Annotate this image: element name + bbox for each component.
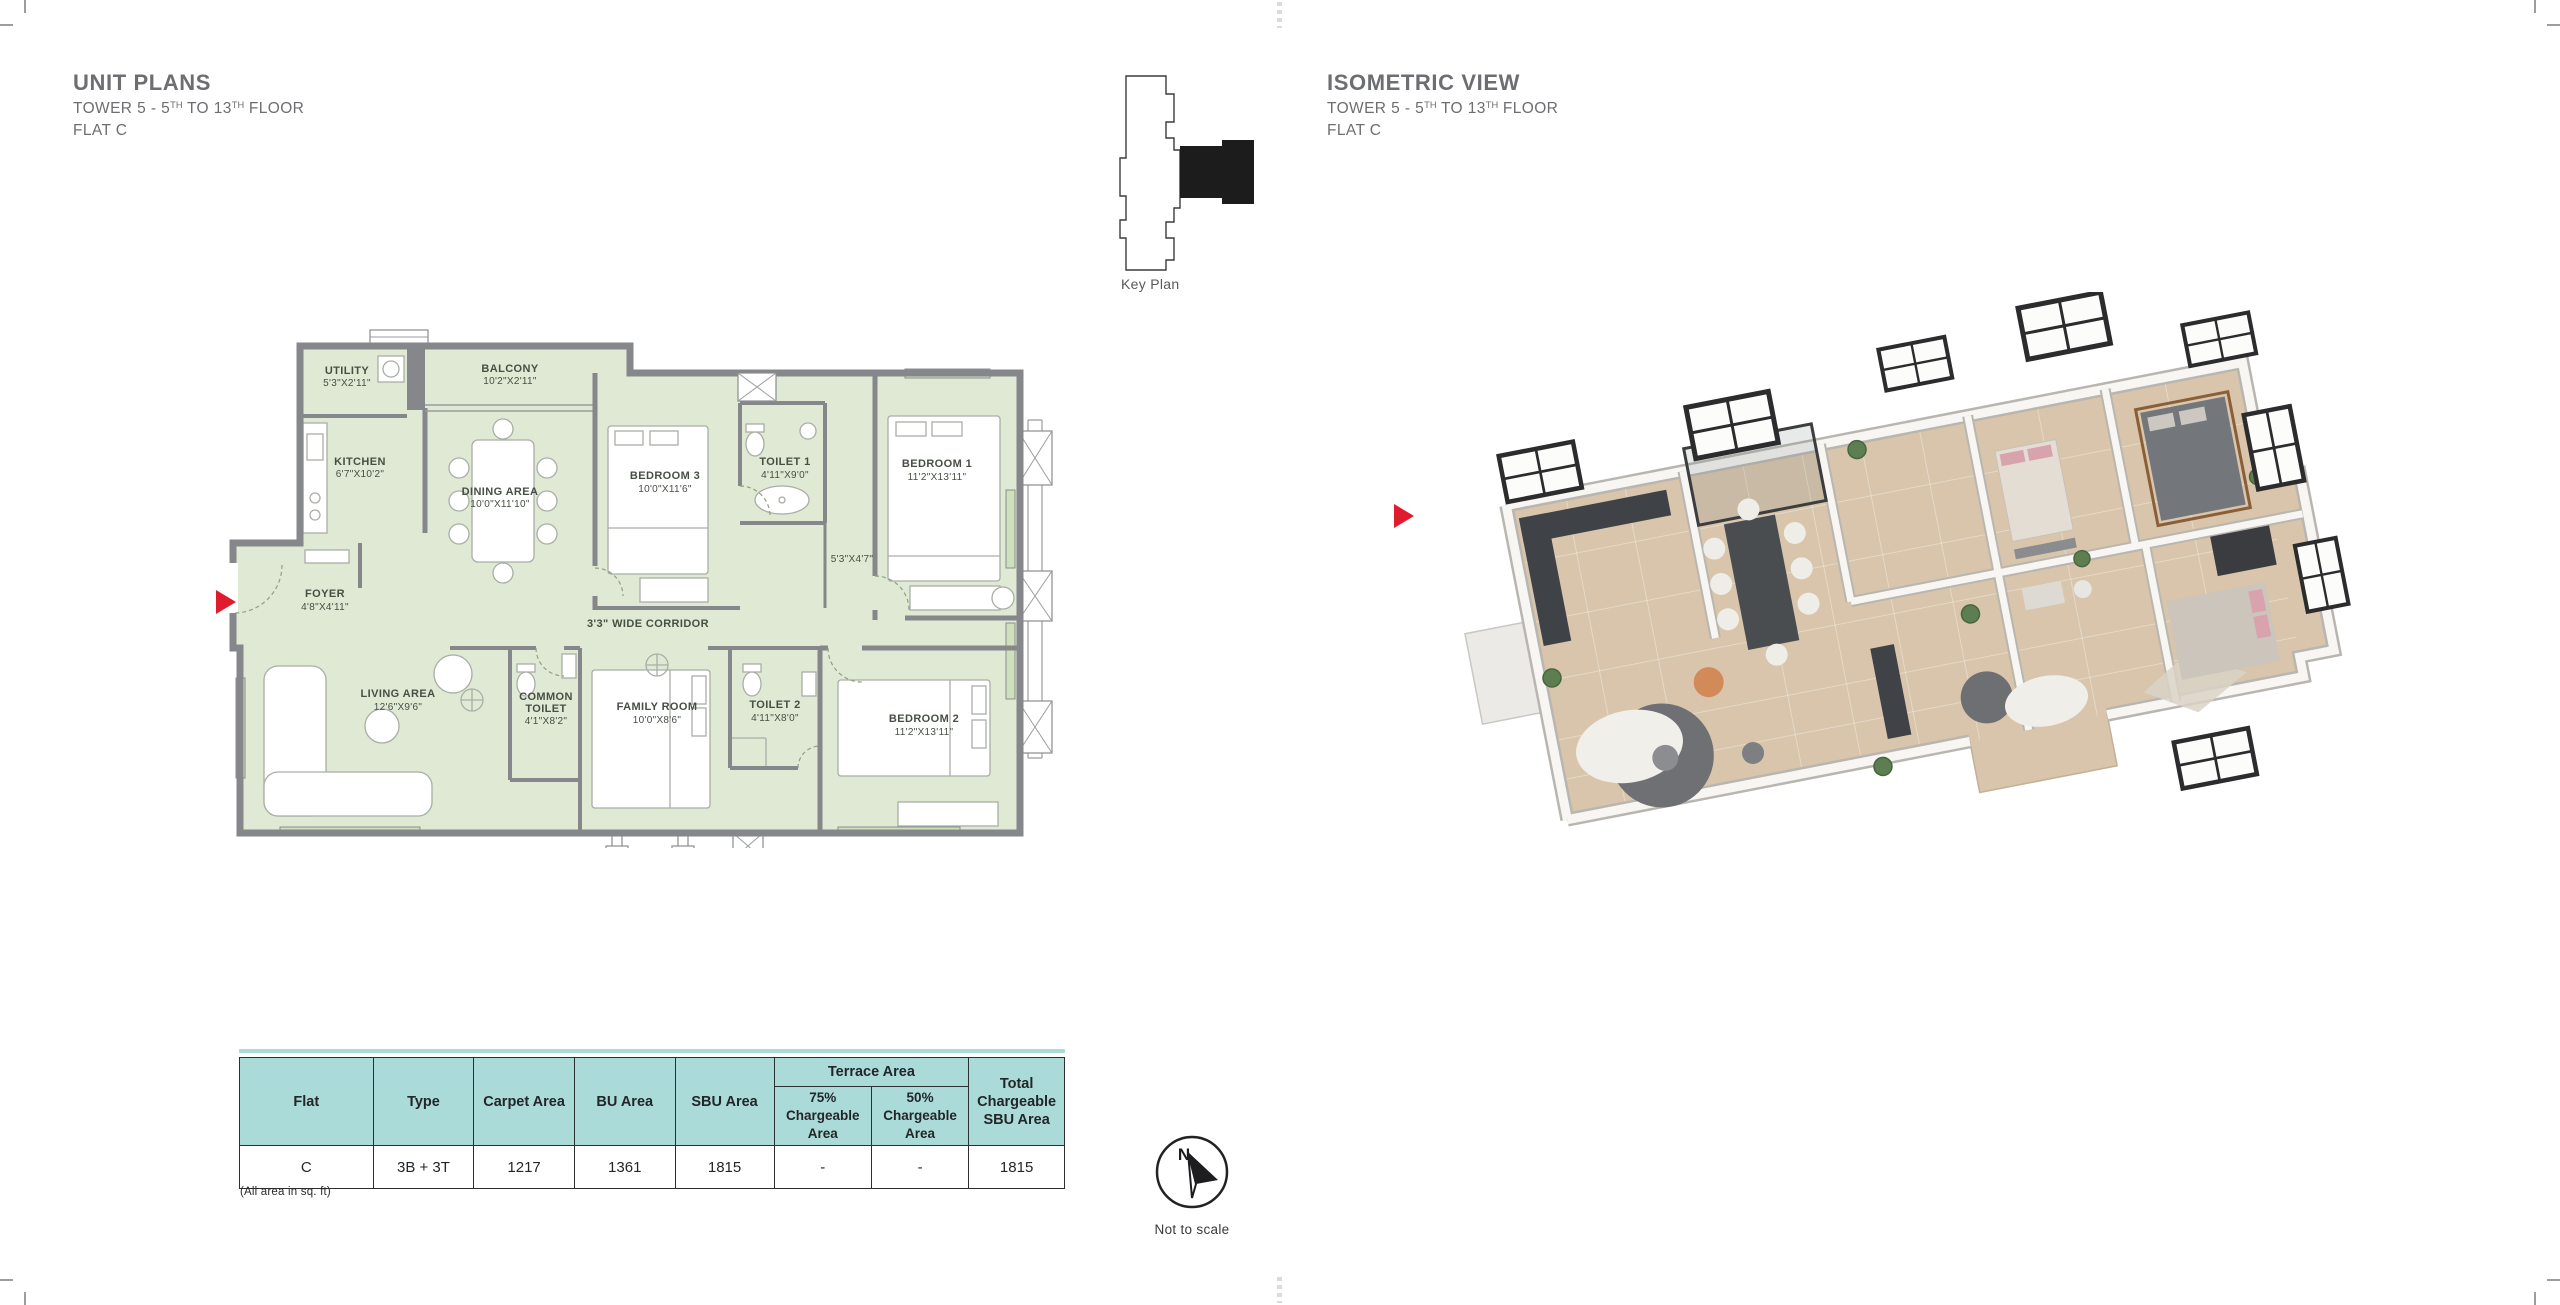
fan-icon	[461, 689, 483, 711]
room-label-foyer: FOYER	[305, 588, 345, 600]
room-label-bedroom2: BEDROOM 2	[889, 713, 959, 725]
area-table: Flat Type Carpet Area BU Area SBU Area T…	[239, 1057, 1065, 1189]
crop-mark	[0, 24, 13, 26]
unit-plans-header: UNIT PLANS TOWER 5 - 5TH TO 13TH FLOOR F…	[73, 70, 304, 140]
room-label-bedroom1: BEDROOM 1	[902, 458, 972, 470]
key-plan-label: Key Plan	[1121, 276, 1179, 292]
floor-plan: UTILITY 5'3"X2'11" BALCONY 10'2"X2'11" K…	[210, 328, 1070, 848]
tower-outline	[1120, 76, 1180, 270]
svg-text:10'2"X2'11": 10'2"X2'11"	[483, 376, 537, 387]
crop-mark	[24, 1292, 26, 1305]
registration-mark	[1277, 2, 1282, 28]
col-header-sbu: SBU Area	[675, 1058, 774, 1146]
cell-carpet: 1217	[474, 1146, 575, 1189]
cell-total: 1815	[969, 1146, 1065, 1189]
room-label-toilet2: TOILET 2	[749, 699, 800, 711]
cell-type: 3B + 3T	[373, 1146, 474, 1189]
key-plan-diagram	[1118, 62, 1268, 277]
compass-icon: N	[1150, 1130, 1234, 1214]
col-header-bu: BU Area	[574, 1058, 675, 1146]
room-label-toilet1: TOILET 1	[759, 456, 810, 468]
room-label-living: LIVING AREA	[361, 688, 436, 700]
cell-bu: 1361	[574, 1146, 675, 1189]
brochure-page: { "colors": { "title_gray": "#6d6e71", "…	[0, 0, 2560, 1305]
crop-mark	[0, 1279, 13, 1281]
flat-subtitle: FLAT C	[73, 122, 304, 140]
crop-mark	[2534, 0, 2536, 13]
svg-text:10'0"X8'6": 10'0"X8'6"	[633, 715, 682, 726]
svg-text:4'8"X4'11": 4'8"X4'11"	[301, 602, 349, 613]
svg-text:4'11"X9'0": 4'11"X9'0"	[761, 470, 809, 481]
col-header-carpet: Carpet Area	[474, 1058, 575, 1146]
svg-text:10'0"X11'10": 10'0"X11'10"	[470, 499, 530, 510]
page-title: ISOMETRIC VIEW	[1327, 70, 1558, 96]
room-label-kitchen: KITCHEN	[334, 456, 386, 468]
registration-mark	[1277, 1277, 1282, 1303]
svg-text:4'11"X8'0": 4'11"X8'0"	[751, 713, 799, 724]
crop-mark	[2547, 24, 2560, 26]
svg-text:TOILET: TOILET	[525, 703, 566, 715]
corridor-label: 3'3" WIDE CORRIDOR	[587, 618, 709, 630]
col-header-type: Type	[373, 1058, 474, 1146]
room-label-family: FAMILY ROOM	[617, 701, 698, 713]
isometric-header: ISOMETRIC VIEW TOWER 5 - 5TH TO 13TH FLO…	[1327, 70, 1558, 140]
col-header-50-chargeable: 50% Chargeable Area	[871, 1087, 968, 1146]
table-accent-line	[239, 1049, 1065, 1053]
svg-text:11'2"X13'11": 11'2"X13'11"	[908, 472, 967, 483]
cell-flat: C	[240, 1146, 374, 1189]
flat-c-highlight	[1180, 140, 1254, 204]
crop-mark	[2534, 1292, 2536, 1305]
crop-mark	[2547, 1279, 2560, 1281]
col-header-flat: Flat	[240, 1058, 374, 1146]
tower-floor-subtitle: TOWER 5 - 5TH TO 13TH FLOOR	[73, 100, 304, 118]
not-to-scale-note: Not to scale	[1132, 1222, 1252, 1237]
fan-icon	[646, 654, 668, 676]
flat-subtitle: FLAT C	[1327, 122, 1558, 140]
svg-text:11'2"X13'11": 11'2"X13'11"	[895, 727, 954, 738]
svg-text:12'6"X9'6": 12'6"X9'6"	[374, 702, 423, 713]
table-footnote: (All area in sq. ft)	[240, 1186, 331, 1198]
col-header-total: Total Chargeable SBU Area	[969, 1058, 1065, 1146]
isometric-view	[1380, 292, 2420, 862]
room-label-bedroom3: BEDROOM 3	[630, 470, 700, 482]
col-header-terrace: Terrace Area	[774, 1058, 969, 1087]
cell-t50: -	[871, 1146, 968, 1189]
svg-text:10'0"X11'6": 10'0"X11'6"	[638, 484, 692, 495]
room-label-utility: UTILITY	[325, 365, 370, 377]
cell-t75: -	[774, 1146, 871, 1189]
col-header-75-chargeable: 75% Chargeable Area	[774, 1087, 871, 1146]
svg-text:5'3"X2'11": 5'3"X2'11"	[323, 378, 371, 389]
room-label-dining: DINING AREA	[462, 486, 539, 498]
passage-dim: 5'3"X4'7"	[831, 554, 874, 565]
table-row: C 3B + 3T 1217 1361 1815 - - 1815	[240, 1146, 1065, 1189]
cell-sbu: 1815	[675, 1146, 774, 1189]
tower-floor-subtitle: TOWER 5 - 5TH TO 13TH FLOOR	[1327, 100, 1558, 118]
room-label-common-toilet: COMMON	[519, 691, 573, 703]
svg-text:6'7"X10'2": 6'7"X10'2"	[336, 469, 385, 480]
page-title: UNIT PLANS	[73, 70, 304, 96]
entry-arrow-icon	[1394, 504, 1414, 528]
room-label-balcony: BALCONY	[481, 363, 538, 375]
svg-text:4'1"X8'2": 4'1"X8'2"	[525, 716, 568, 727]
crop-mark	[24, 0, 26, 13]
